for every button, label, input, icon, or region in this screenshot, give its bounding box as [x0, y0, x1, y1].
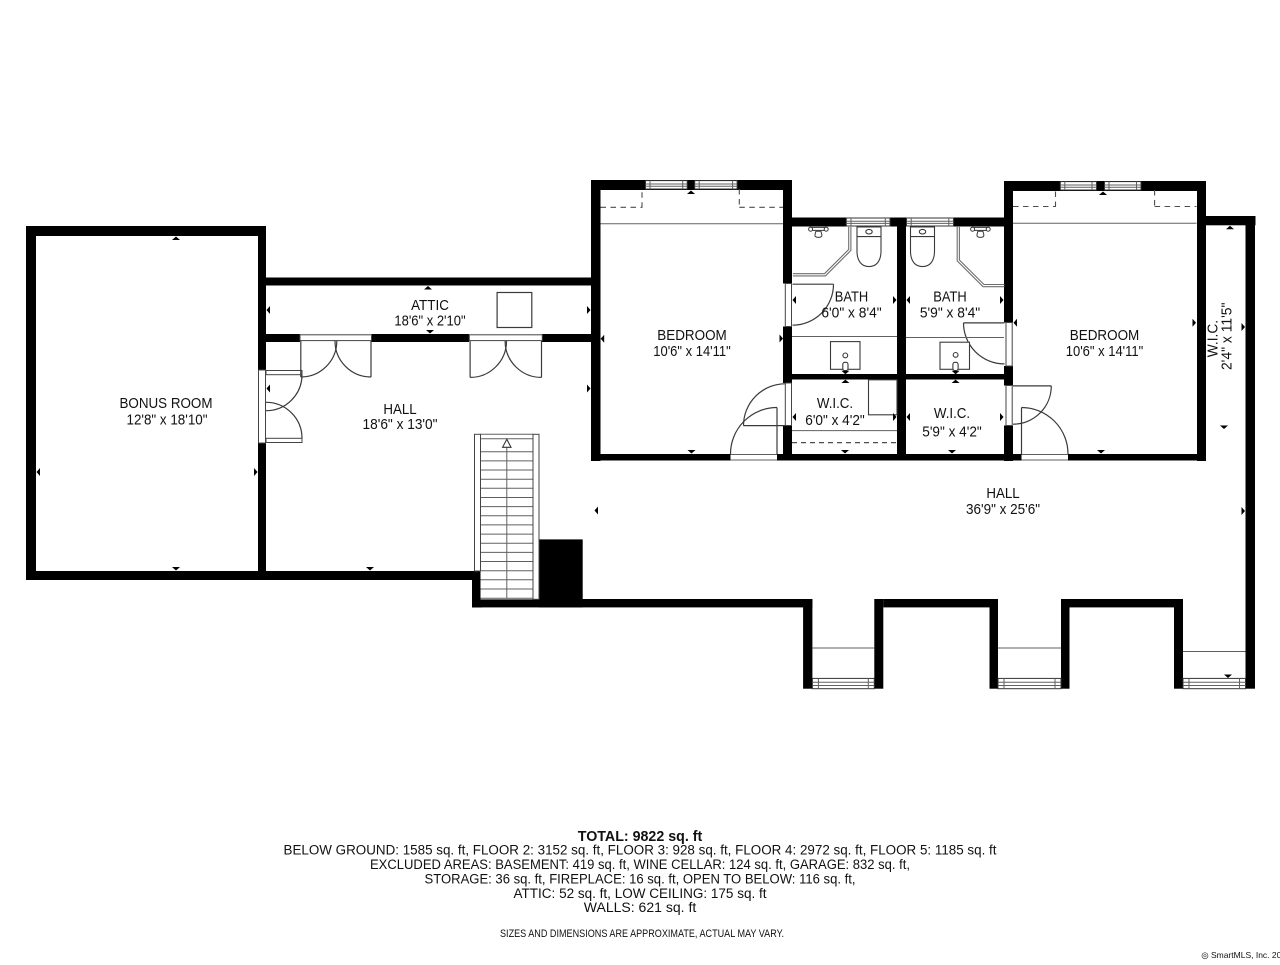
svg-text:2'4" x 11'5": 2'4" x 11'5"	[1219, 303, 1236, 371]
svg-text:18'6" x 13'0": 18'6" x 13'0"	[363, 417, 438, 433]
svg-text:◎ SmartMLS, Inc. 2023: ◎ SmartMLS, Inc. 2023	[1201, 950, 1280, 960]
svg-text:6'0" x 4'2": 6'0" x 4'2"	[805, 413, 865, 429]
svg-text:BATH: BATH	[835, 290, 868, 306]
svg-text:WALLS: 621 sq. ft: WALLS: 621 sq. ft	[584, 900, 697, 915]
svg-text:ATTIC: ATTIC	[411, 298, 449, 314]
svg-text:EXCLUDED AREAS: BASEMENT: 419: EXCLUDED AREAS: BASEMENT: 419 sq. ft, WI…	[370, 857, 910, 872]
svg-text:SIZES AND DIMENSIONS ARE APPRO: SIZES AND DIMENSIONS ARE APPROXIMATE, AC…	[500, 928, 784, 940]
svg-text:BATH: BATH	[933, 290, 966, 306]
svg-text:18'6" x 2'10": 18'6" x 2'10"	[394, 314, 465, 330]
svg-text:10'6" x 14'11": 10'6" x 14'11"	[653, 344, 731, 360]
svg-text:HALL: HALL	[986, 486, 1019, 502]
svg-text:ATTIC: 52 sq. ft, LOW CEILING:: ATTIC: 52 sq. ft, LOW CEILING: 175 sq. f…	[514, 886, 767, 901]
svg-text:BONUS ROOM: BONUS ROOM	[120, 396, 213, 412]
svg-text:W.I.C.: W.I.C.	[817, 396, 853, 412]
svg-text:W.I.C.: W.I.C.	[934, 406, 970, 422]
svg-text:STORAGE: 36 sq. ft, FIREPLACE:: STORAGE: 36 sq. ft, FIREPLACE: 16 sq. ft…	[425, 872, 856, 887]
svg-text:6'0" x 8'4": 6'0" x 8'4"	[821, 306, 881, 322]
svg-text:36'9" x 25'6": 36'9" x 25'6"	[966, 502, 1040, 518]
svg-text:5'9" x 8'4": 5'9" x 8'4"	[920, 306, 980, 322]
svg-text:BELOW GROUND: 1585 sq. ft, FLO: BELOW GROUND: 1585 sq. ft, FLOOR 2: 3152…	[284, 843, 997, 858]
svg-text:10'6" x 14'11": 10'6" x 14'11"	[1066, 344, 1144, 360]
svg-text:HALL: HALL	[383, 402, 416, 418]
svg-text:5'9" x 4'2": 5'9" x 4'2"	[922, 425, 982, 441]
svg-text:12'8" x 18'10": 12'8" x 18'10"	[127, 413, 208, 429]
svg-text:BEDROOM: BEDROOM	[1070, 328, 1140, 344]
svg-text:BEDROOM: BEDROOM	[657, 328, 727, 344]
